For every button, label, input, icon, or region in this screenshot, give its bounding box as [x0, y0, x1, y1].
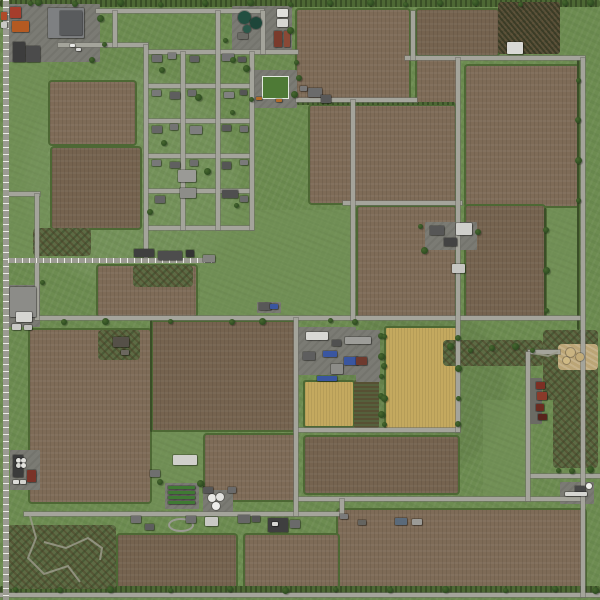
silo-tank — [212, 502, 220, 510]
tree — [437, 0, 443, 6]
orchard-garden — [354, 380, 379, 428]
tree — [544, 308, 549, 313]
building — [152, 160, 161, 166]
tree — [296, 75, 302, 81]
tree — [158, 2, 163, 7]
building — [240, 160, 248, 165]
tree — [202, 0, 208, 6]
field-brown — [245, 535, 338, 588]
road — [216, 11, 220, 230]
building — [16, 312, 32, 322]
tree — [575, 157, 582, 164]
field-brown — [466, 206, 544, 318]
tree — [61, 319, 67, 325]
sand-pile — [566, 348, 575, 357]
field-brown — [50, 82, 135, 144]
greenhouse-row — [168, 491, 195, 494]
tree — [468, 348, 473, 353]
road — [148, 84, 253, 88]
tree — [455, 335, 461, 341]
building — [205, 517, 218, 526]
greenhouse-row — [168, 496, 195, 499]
building — [13, 480, 19, 484]
building — [321, 95, 331, 103]
tree — [282, 587, 289, 594]
road — [351, 100, 355, 320]
building — [252, 516, 260, 522]
tree — [418, 224, 423, 229]
building — [170, 162, 180, 168]
tree — [381, 395, 388, 402]
building — [303, 352, 315, 360]
tree — [503, 588, 508, 593]
tree — [227, 586, 233, 592]
tree — [147, 209, 153, 215]
scrub-area — [33, 228, 91, 256]
tree — [556, 468, 561, 473]
field-brown — [417, 60, 456, 104]
tree — [168, 319, 173, 324]
greenhouse-row — [168, 486, 195, 489]
tree — [72, 1, 78, 7]
tree — [13, 587, 18, 592]
building — [152, 126, 162, 133]
building — [222, 190, 238, 198]
building — [145, 524, 154, 530]
building — [60, 11, 82, 35]
building — [186, 516, 196, 523]
tree — [288, 2, 293, 7]
building — [340, 514, 348, 519]
building — [256, 97, 262, 100]
building — [203, 487, 213, 493]
road — [343, 201, 462, 205]
tree — [576, 198, 581, 203]
tree — [223, 38, 228, 43]
orange-barn — [12, 21, 29, 32]
road — [0, 593, 600, 597]
tree — [328, 318, 333, 323]
building — [1, 12, 7, 20]
building — [228, 487, 236, 493]
tree — [455, 421, 461, 427]
tree — [387, 587, 393, 593]
tree — [442, 586, 449, 593]
building — [170, 92, 180, 99]
tree — [552, 586, 558, 592]
tree — [333, 587, 338, 592]
building — [238, 515, 250, 523]
vehicle — [76, 48, 81, 51]
tree — [234, 203, 239, 208]
building — [452, 264, 465, 273]
road — [250, 52, 254, 230]
tree — [294, 60, 299, 65]
tree — [159, 67, 165, 73]
field-brown — [52, 148, 140, 228]
tree — [107, 586, 114, 593]
building — [272, 522, 278, 526]
tree — [562, 0, 568, 6]
tree — [475, 229, 481, 235]
tree — [456, 396, 461, 401]
tree — [512, 343, 519, 350]
hedge-band — [150, 320, 153, 432]
building — [190, 56, 199, 62]
railway — [8, 258, 215, 263]
red-barn — [536, 404, 544, 411]
building — [173, 455, 197, 465]
tree — [291, 91, 298, 98]
tree — [117, 0, 124, 6]
farm-map-image — [0, 0, 600, 600]
road — [296, 98, 417, 102]
building — [456, 223, 472, 235]
tree — [259, 318, 266, 325]
building — [332, 340, 341, 346]
bunker-silo — [274, 31, 282, 47]
tree — [382, 422, 387, 427]
building — [276, 99, 282, 102]
tree — [489, 345, 495, 351]
building — [345, 337, 371, 344]
building — [277, 19, 288, 27]
building — [222, 162, 231, 169]
building — [203, 255, 215, 262]
village-hall — [178, 170, 196, 182]
building — [444, 238, 457, 246]
tree — [592, 587, 599, 594]
silo-tank — [16, 458, 21, 463]
road — [113, 11, 117, 47]
tree — [102, 42, 107, 47]
greenhouse-row — [168, 501, 195, 504]
road — [144, 45, 148, 260]
meadow-patch — [544, 206, 580, 318]
sellpoint-stalls — [565, 492, 587, 496]
building — [268, 518, 288, 532]
building — [430, 226, 444, 235]
tree — [102, 318, 109, 325]
building — [168, 53, 176, 59]
field-yellow — [305, 382, 353, 426]
tree — [157, 479, 163, 485]
building — [155, 196, 165, 203]
tree — [367, 0, 374, 6]
tree — [575, 117, 581, 123]
sand-pile — [576, 353, 584, 361]
tree — [28, 1, 33, 6]
tree — [161, 140, 167, 146]
tree — [421, 247, 428, 254]
building — [27, 470, 36, 482]
building — [224, 92, 234, 98]
sand-pile — [563, 357, 570, 364]
field-brown — [338, 510, 585, 588]
field-brown — [466, 66, 578, 206]
tree — [197, 480, 204, 487]
solar-panel — [270, 304, 278, 309]
road — [181, 52, 185, 230]
building — [170, 124, 178, 130]
tree — [230, 110, 235, 115]
red-barn — [536, 382, 545, 389]
building — [308, 88, 322, 97]
railway — [3, 0, 9, 600]
hedge-band — [577, 58, 580, 330]
tree — [378, 411, 385, 418]
road — [581, 58, 585, 597]
silo-tank — [216, 493, 224, 501]
building — [13, 42, 25, 62]
road — [530, 474, 600, 478]
field-brown — [310, 106, 455, 203]
tree — [381, 363, 387, 369]
silo-tank — [208, 494, 216, 502]
soccer-pitch — [262, 76, 289, 99]
building — [121, 350, 129, 355]
tree — [40, 280, 45, 285]
road — [261, 11, 265, 54]
red-barn — [538, 414, 547, 420]
rail-warehouse — [158, 251, 182, 260]
tree — [455, 365, 462, 372]
silo-tank — [21, 463, 26, 468]
road — [36, 316, 585, 320]
building — [238, 57, 246, 62]
tree — [287, 27, 294, 34]
building — [358, 520, 366, 525]
road — [148, 154, 253, 158]
building — [412, 519, 422, 525]
tree — [447, 343, 454, 350]
building — [186, 250, 194, 257]
building — [180, 188, 196, 198]
building — [20, 480, 26, 484]
road — [526, 352, 530, 501]
road — [405, 56, 585, 60]
tree — [243, 65, 250, 72]
hedge-band — [544, 208, 547, 318]
tree — [569, 468, 575, 474]
building — [222, 125, 231, 131]
rail-warehouse — [134, 249, 154, 257]
building — [507, 42, 523, 54]
scrub-area — [553, 398, 598, 468]
road — [148, 119, 253, 123]
building — [356, 357, 367, 365]
tree — [587, 466, 594, 473]
building — [277, 9, 288, 17]
field-brown — [152, 322, 295, 430]
tree — [382, 334, 387, 339]
building — [240, 126, 248, 132]
tree — [35, 0, 42, 6]
field-brown — [305, 437, 458, 493]
building — [238, 33, 248, 39]
tree — [229, 319, 235, 325]
building — [152, 90, 161, 96]
tree — [327, 0, 333, 6]
building — [12, 324, 21, 330]
vehicle — [70, 44, 75, 47]
tree — [576, 78, 581, 83]
silo-tank — [16, 463, 21, 468]
solar-panel — [317, 376, 337, 381]
building — [24, 325, 32, 330]
tree — [97, 15, 104, 22]
road — [294, 318, 298, 516]
tree — [168, 588, 173, 593]
building — [190, 126, 202, 134]
building — [1, 22, 7, 28]
building — [240, 196, 248, 202]
road — [411, 11, 415, 60]
tree — [247, 0, 254, 6]
building — [26, 46, 40, 62]
tree — [195, 94, 202, 101]
field-brown — [118, 535, 236, 588]
tree — [472, 0, 479, 6]
silo-tank — [21, 458, 26, 463]
tree — [518, 2, 523, 7]
biogas-tank — [238, 11, 251, 24]
tree — [587, 0, 594, 6]
scrub-area — [133, 265, 193, 287]
building — [150, 470, 160, 477]
tree — [403, 2, 408, 7]
scrub-area — [8, 525, 116, 589]
building — [395, 518, 407, 525]
building — [290, 520, 300, 528]
tree — [230, 57, 236, 63]
building — [113, 337, 129, 347]
red-barn — [537, 392, 547, 400]
building — [152, 55, 162, 62]
building — [190, 160, 198, 166]
solar-panel — [323, 351, 337, 357]
road — [294, 428, 460, 432]
tree — [57, 587, 63, 593]
tree — [204, 168, 211, 175]
building — [306, 332, 328, 340]
building — [331, 364, 343, 374]
building — [300, 86, 307, 91]
tree — [543, 267, 550, 274]
biogas-tank — [243, 25, 251, 33]
tree — [89, 57, 95, 63]
building — [240, 90, 247, 95]
field-brown — [417, 10, 498, 55]
tree — [530, 348, 535, 353]
tree — [543, 227, 549, 233]
road — [146, 226, 253, 230]
red-roof-house — [10, 7, 21, 18]
road — [294, 497, 585, 501]
tree — [249, 97, 254, 102]
wind-turbine — [586, 483, 592, 489]
building — [131, 516, 141, 523]
tree — [379, 374, 384, 379]
biogas-tank — [250, 17, 262, 29]
tree — [352, 319, 358, 325]
tree — [378, 353, 385, 360]
